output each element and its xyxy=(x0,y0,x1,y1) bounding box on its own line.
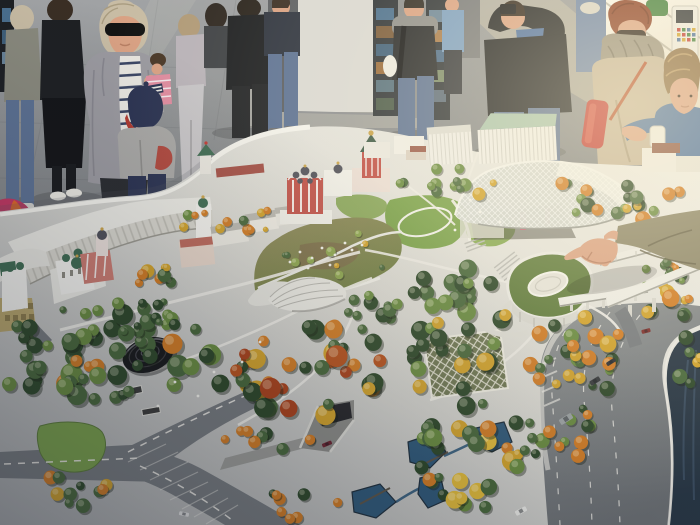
scene-canvas xyxy=(0,0,700,525)
photo-scene xyxy=(0,0,700,525)
cool-shade-overlay xyxy=(0,0,700,525)
